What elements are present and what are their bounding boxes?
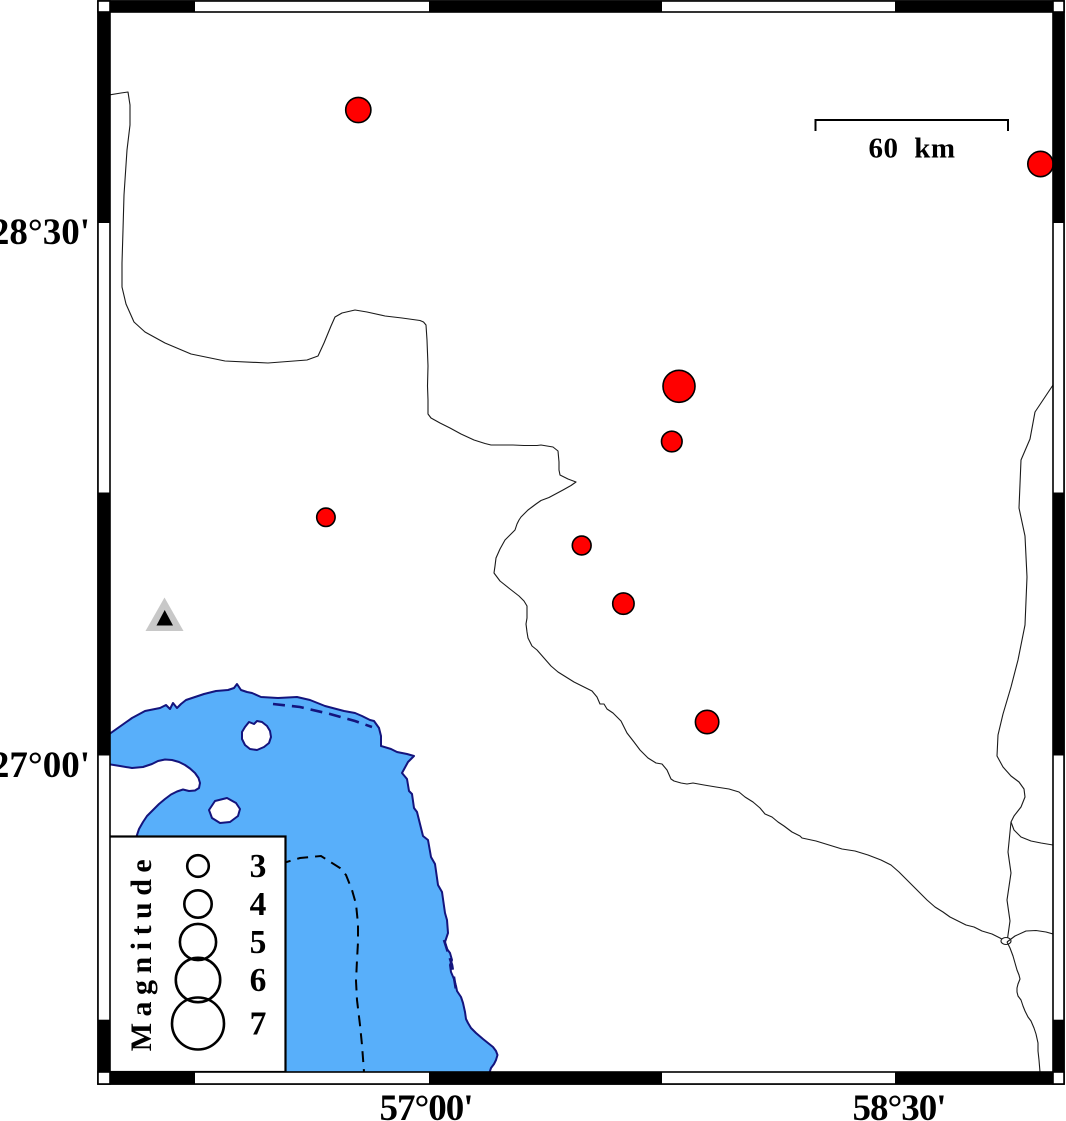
svg-text:3: 3 (250, 848, 267, 885)
svg-text:58°30': 58°30' (852, 1088, 945, 1121)
svg-text:Magnitude: Magnitude (125, 853, 158, 1052)
svg-text:57°00': 57°00' (379, 1088, 472, 1121)
svg-text:5: 5 (250, 924, 267, 961)
svg-text:7: 7 (250, 1006, 267, 1043)
svg-text:60 km: 60 km (868, 133, 955, 165)
svg-text:27°00': 27°00' (0, 745, 90, 786)
svg-text:4: 4 (250, 886, 267, 923)
svg-text:28°30': 28°30' (0, 212, 90, 253)
svg-text:6: 6 (250, 962, 267, 999)
